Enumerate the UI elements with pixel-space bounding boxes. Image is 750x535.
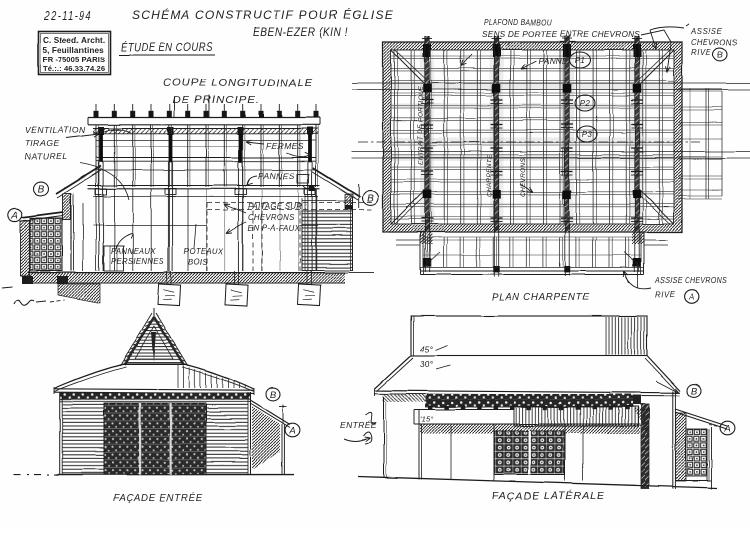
svg-text:BOIS: BOIS: [188, 258, 208, 267]
svg-text:CHEVRONS: CHEVRONS: [248, 213, 295, 222]
svg-text:ÉTUDE EN COURS: ÉTUDE EN COURS: [121, 41, 213, 54]
svg-text:NATUREL: NATUREL: [25, 151, 68, 161]
svg-text:SCHÉMA CONSTRUCTIF POUR ÉGLIS: SCHÉMA CONSTRUCTIF POUR ÉGLISE: [132, 7, 394, 22]
svg-text:30°: 30°: [420, 359, 434, 369]
svg-text:Té.:.: 46.33.74.26: Té.:.: 46.33.74.26: [43, 64, 105, 73]
svg-text:SENS DE PORTEE ENTRE CHEVRONS: SENS DE PORTEE ENTRE CHEVRONS: [482, 29, 640, 39]
svg-text:ASSISE: ASSISE: [690, 27, 723, 36]
svg-text:FAÇADE LATÉRALE: FAÇADE LATÉRALE: [492, 489, 605, 502]
svg-text:PANNEAUX: PANNEAUX: [111, 247, 156, 256]
svg-text:A: A: [11, 211, 19, 222]
svg-text:B: B: [367, 194, 374, 205]
svg-text:PANNE: PANNE: [538, 56, 568, 66]
svg-text:'15°: '15°: [420, 415, 434, 424]
svg-text:FR -75005 PARIS: FR -75005 PARIS: [43, 55, 105, 64]
svg-text:EBEN-EZER (KIN !: EBEN-EZER (KIN !: [253, 27, 348, 39]
svg-text:ASSISE CHEVRONS: ASSISE CHEVRONS: [654, 276, 727, 285]
svg-text:PLAN CHARPENTE: PLAN CHARPENTE: [492, 291, 590, 303]
svg-text:A: A: [288, 425, 295, 436]
svg-text:PANNES: PANNES: [258, 171, 295, 181]
svg-text:FAÇADE ENTRÉE: FAÇADE ENTRÉE: [113, 491, 203, 504]
svg-text:POTEAUX: POTEAUX: [184, 247, 224, 256]
svg-text:A: A: [723, 423, 730, 434]
svg-text:VENTILATION: VENTILATION: [25, 125, 86, 135]
svg-text:RIVE: RIVE: [655, 290, 676, 299]
svg-text:FERMES: FERMES: [266, 141, 304, 151]
svg-text:B: B: [270, 389, 277, 400]
svg-text:B: B: [717, 50, 723, 60]
svg-text:DE PRINCIPE.: DE PRINCIPE.: [172, 95, 260, 106]
svg-text:PLAFOND BAMBOU: PLAFOND BAMBOU: [484, 17, 552, 27]
svg-text:45°: 45°: [420, 344, 434, 354]
svg-text:B: B: [691, 386, 698, 397]
svg-text:PERSIENNES: PERSIENNES: [111, 257, 165, 266]
svg-text:P3: P3: [582, 130, 593, 139]
svg-text:A: A: [688, 292, 695, 302]
svg-text:COUPE LONGITUDINALE: COUPE LONGITUDINALE: [163, 78, 313, 89]
svg-text:CHEVRONS: CHEVRONS: [520, 158, 527, 197]
svg-text:ENTRAIT DE PORTIQUE: ENTRAIT DE PORTIQUE: [418, 85, 425, 165]
svg-text:TIRAGE: TIRAGE: [25, 138, 60, 148]
svg-text:P2: P2: [580, 99, 591, 108]
svg-text:CHEVRONS: CHEVRONS: [691, 38, 738, 47]
svg-text:5, Feuillantines: 5, Feuillantines: [43, 46, 104, 55]
svg-text:CHARPENTE: CHARPENTE: [486, 154, 493, 197]
svg-text:22-11-94: 22-11-94: [43, 8, 92, 23]
svg-text:EN P-A-FAUX: EN P-A-FAUX: [248, 224, 301, 233]
svg-text:B: B: [38, 185, 45, 196]
svg-text:P1: P1: [575, 56, 585, 65]
svg-text:RIVE: RIVE: [691, 48, 712, 57]
svg-text:FAITAGE SUR :: FAITAGE SUR :: [248, 202, 307, 211]
svg-text:C. Steed. Archt.: C. Steed. Archt.: [43, 36, 105, 45]
